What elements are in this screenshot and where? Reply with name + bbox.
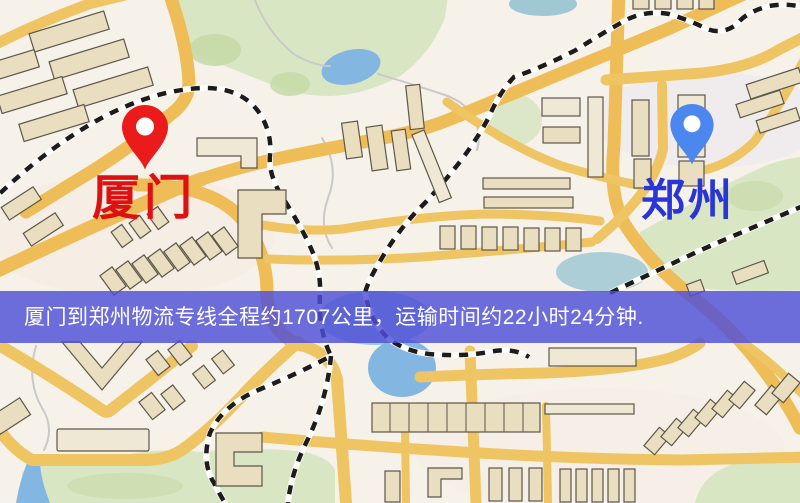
origin-pin-hole — [136, 118, 154, 136]
destination-city-label: 郑州 — [641, 179, 735, 223]
route-info-text: 厦门到郑州物流专线全程约1707公里，运输时间约22小时24分钟. — [0, 291, 800, 344]
logistics-route-map: 厦门 郑州 厦门到郑州物流专线全程约1707公里，运输时间约22小时24分钟. — [0, 0, 800, 503]
destination-pin-hole — [684, 115, 701, 132]
route-info-banner: 厦门到郑州物流专线全程约1707公里，运输时间约22小时24分钟. — [0, 291, 800, 343]
map-canvas[interactable] — [0, 0, 800, 503]
origin-city-label: 厦门 — [92, 175, 196, 223]
